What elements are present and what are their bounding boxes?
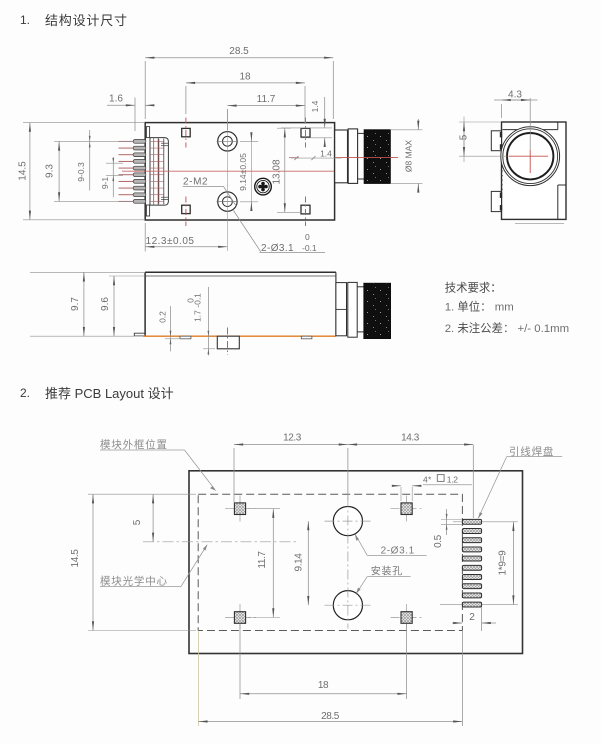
svg-text:2-M2: 2-M2 xyxy=(183,177,208,188)
svg-text:4.3: 4.3 xyxy=(508,90,522,101)
svg-text:14.3: 14.3 xyxy=(401,433,420,444)
svg-text:1.2: 1.2 xyxy=(447,475,458,485)
svg-text:1.4: 1.4 xyxy=(310,100,320,112)
svg-text:1.: 1. xyxy=(20,13,30,27)
svg-text:9.14±0.05: 9.14±0.05 xyxy=(238,153,248,191)
svg-text:推荐 PCB Layout 设计: 推荐 PCB Layout 设计 xyxy=(45,386,174,401)
svg-text:5: 5 xyxy=(459,134,470,140)
svg-text:12.3±0.05: 12.3±0.05 xyxy=(146,236,195,247)
svg-text:结构设计尺寸: 结构设计尺寸 xyxy=(45,13,128,28)
svg-text:28.5: 28.5 xyxy=(321,711,340,722)
svg-text:2-Ø3.1: 2-Ø3.1 xyxy=(261,243,294,254)
svg-text:14.5: 14.5 xyxy=(18,161,29,181)
svg-text:11.7: 11.7 xyxy=(257,551,268,569)
svg-text:0.5: 0.5 xyxy=(433,534,444,548)
svg-text:引线焊盘: 引线焊盘 xyxy=(509,445,554,458)
svg-text:0: 0 xyxy=(305,232,310,242)
svg-text:28.5: 28.5 xyxy=(229,46,249,57)
svg-text:12.3: 12.3 xyxy=(283,433,302,444)
svg-text:9-0.3: 9-0.3 xyxy=(76,162,86,182)
svg-text:0: 0 xyxy=(186,298,196,303)
svg-text:模块外框位置: 模块外框位置 xyxy=(100,438,168,451)
svg-text:安装孔: 安装孔 xyxy=(371,565,403,578)
svg-text:9.6: 9.6 xyxy=(100,297,111,311)
svg-text:模块光学中心: 模块光学中心 xyxy=(100,575,168,588)
svg-text:9-1: 9-1 xyxy=(100,177,110,190)
svg-text:1*9=9: 1*9=9 xyxy=(498,550,509,576)
svg-text:1. 单位： mm: 1. 单位： mm xyxy=(445,299,514,313)
svg-text:2.: 2. xyxy=(20,386,30,400)
svg-text:1.6: 1.6 xyxy=(109,94,123,105)
svg-text:Ø8 MAX: Ø8 MAX xyxy=(404,140,414,172)
svg-text:18: 18 xyxy=(318,680,329,691)
svg-text:2-Ø3.1: 2-Ø3.1 xyxy=(381,546,415,557)
svg-text:-0.1: -0.1 xyxy=(302,243,317,253)
svg-text:0.2: 0.2 xyxy=(158,311,168,323)
svg-text:1.7 -0.1: 1.7 -0.1 xyxy=(193,293,203,322)
svg-text:2. 未注公差： +/- 0.1mm: 2. 未注公差： +/- 0.1mm xyxy=(445,321,569,335)
svg-text:9.3: 9.3 xyxy=(45,164,56,178)
svg-text:9.14: 9.14 xyxy=(294,553,305,572)
svg-text:技术要求：: 技术要求： xyxy=(445,282,502,295)
svg-text:2: 2 xyxy=(469,612,475,623)
svg-text:4*: 4* xyxy=(423,475,432,485)
svg-text:13.08: 13.08 xyxy=(272,159,283,184)
svg-text:18: 18 xyxy=(239,72,251,83)
svg-text:14.5: 14.5 xyxy=(70,549,81,568)
svg-text:1.4: 1.4 xyxy=(320,149,332,159)
svg-text:11.7: 11.7 xyxy=(257,94,276,105)
svg-text:9.7: 9.7 xyxy=(70,297,81,311)
svg-text:5: 5 xyxy=(132,519,143,525)
